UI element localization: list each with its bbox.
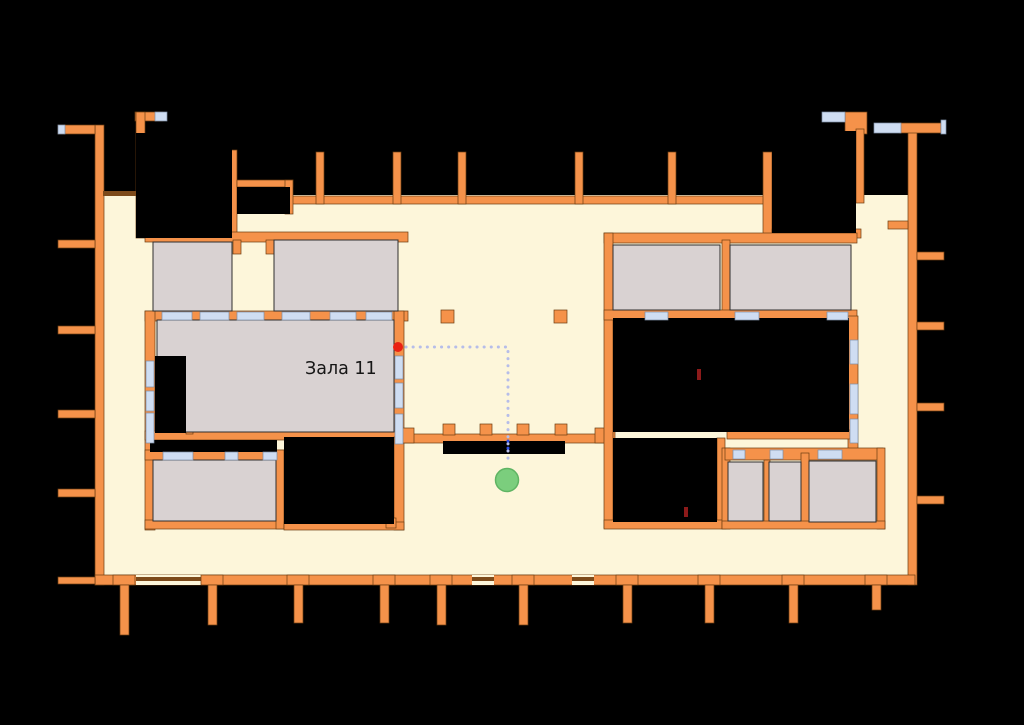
room	[153, 242, 232, 311]
room	[730, 245, 851, 310]
window	[163, 452, 193, 460]
pillar-base	[554, 310, 567, 323]
wall-stub	[58, 577, 95, 584]
void-area	[284, 437, 394, 524]
window	[395, 414, 403, 444]
floor-plan-map[interactable]: Зала 11	[0, 0, 1024, 725]
wall-stub	[623, 585, 632, 623]
void-area	[150, 440, 277, 452]
threshold	[103, 191, 136, 196]
wall-stub	[287, 575, 309, 585]
window	[818, 450, 842, 459]
wall-stub	[266, 240, 274, 254]
wall-stub	[437, 585, 446, 625]
wall-stub	[233, 240, 241, 254]
wall-stub	[668, 152, 676, 204]
wall-stub	[58, 240, 95, 248]
window	[366, 312, 392, 320]
wall-stub	[58, 489, 95, 497]
wall-stub	[872, 585, 881, 610]
wall-stub	[58, 326, 95, 334]
window	[850, 340, 858, 364]
room	[769, 462, 801, 521]
wall-stub	[865, 575, 887, 585]
wall-stub	[888, 221, 908, 229]
room	[153, 460, 276, 521]
wall-stub	[512, 575, 534, 585]
wall-segment	[877, 448, 885, 529]
wall-stub	[380, 585, 389, 623]
window	[146, 391, 154, 411]
wall-stub	[393, 152, 401, 204]
void-area	[613, 438, 717, 522]
wall-segment	[856, 129, 864, 203]
wall-segment	[604, 233, 613, 528]
wall-stub	[789, 585, 798, 623]
window	[263, 452, 277, 460]
artifact-tick	[697, 369, 701, 380]
wall-stub	[763, 152, 772, 239]
room	[274, 240, 398, 311]
wall-segment	[228, 196, 772, 204]
window	[941, 120, 946, 134]
wall-segment	[899, 123, 941, 133]
wall-segment	[95, 125, 104, 585]
wall-stub	[917, 403, 944, 411]
wall-stub	[519, 585, 528, 625]
window	[827, 312, 848, 320]
wall-segment	[237, 180, 293, 187]
wall-stub	[917, 252, 944, 260]
wall-segment	[394, 437, 404, 530]
room	[613, 245, 720, 310]
wall-segment	[801, 453, 809, 523]
wall-stub	[120, 585, 129, 635]
wall-stub	[705, 585, 714, 623]
wall-stub	[201, 575, 223, 585]
window	[162, 312, 192, 320]
column-base	[443, 424, 455, 435]
wall-segment	[722, 240, 730, 315]
pillar-base	[441, 310, 454, 323]
window	[200, 312, 229, 320]
wall-segment	[276, 450, 284, 529]
current-location-marker[interactable]	[496, 469, 519, 492]
artifact-tick	[684, 507, 688, 517]
wall-stub	[917, 496, 944, 504]
window	[395, 383, 403, 408]
destination-marker[interactable]	[393, 342, 403, 352]
wall-stub	[917, 322, 944, 330]
room	[809, 461, 876, 522]
wall-stub	[430, 575, 452, 585]
window	[770, 450, 783, 459]
window	[645, 312, 668, 320]
doorway-sill	[572, 577, 594, 581]
wall-stub	[113, 575, 135, 585]
void-area	[155, 356, 186, 433]
window	[850, 419, 858, 443]
window	[850, 384, 858, 414]
wall-stub	[782, 575, 804, 585]
window	[146, 413, 154, 443]
window	[330, 312, 356, 320]
room	[728, 462, 763, 521]
void-area	[237, 187, 290, 214]
wall-stub	[458, 152, 466, 204]
floor-plan-svg: Зала 11	[0, 0, 1024, 725]
wall-stub	[208, 585, 217, 625]
window	[225, 452, 238, 460]
window	[735, 312, 759, 320]
window	[146, 361, 154, 387]
window	[822, 112, 845, 122]
wall-stub	[373, 575, 395, 585]
wall-stub	[316, 152, 324, 204]
void-area	[772, 131, 856, 233]
stylobate-bar	[443, 441, 565, 454]
void-area	[613, 318, 849, 432]
wall-stub	[616, 575, 638, 585]
doorway-sill	[136, 577, 201, 581]
window	[155, 112, 167, 121]
hall-11-label: Зала 11	[305, 359, 377, 379]
window	[874, 123, 901, 133]
wall-stub	[58, 410, 95, 418]
window	[395, 356, 403, 379]
window	[282, 312, 310, 320]
wall-segment	[604, 233, 857, 243]
window	[58, 125, 65, 134]
wall-stub	[575, 152, 583, 204]
column-base	[555, 424, 567, 435]
wall-segment	[908, 129, 917, 585]
doorway-sill	[472, 577, 494, 581]
window	[733, 450, 745, 459]
wall-stub	[294, 585, 303, 623]
void-area	[136, 133, 232, 238]
wall-stub	[698, 575, 720, 585]
column-base	[517, 424, 529, 435]
window	[237, 312, 264, 320]
column-base	[480, 424, 492, 435]
